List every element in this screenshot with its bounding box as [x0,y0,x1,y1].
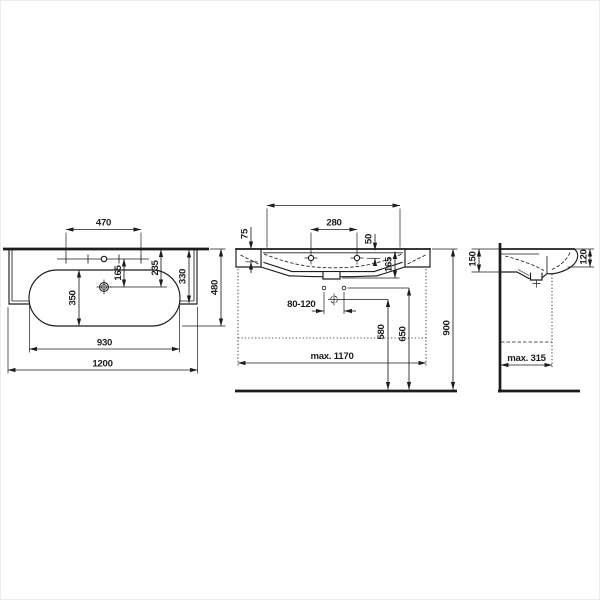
left-wing [236,249,261,267]
ext-lines [66,233,141,255]
profile-underside-inner [518,270,529,276]
right-wing [405,249,430,267]
supply-connection-hole [322,286,326,290]
waste-trap-cross [533,280,541,288]
dim-rim-to-outlet: 165 [384,256,395,272]
dim-overall-width: 1200 [92,359,112,370]
dim-rim-thickness: 75 [240,228,251,239]
dim-supply-spacing: 80-120 [287,299,315,310]
dim-tap-holes-spread: 280 [326,218,341,229]
faucet-hole-marker [354,255,359,260]
dim-tap-to-drain: 165 [113,264,124,280]
faucet-hole-center [101,256,106,261]
dim-tap-spread: 470 [96,218,111,229]
waste-trap-cross [328,294,340,306]
dim-body-depth: 330 [178,269,189,284]
dashed-hidden-line [264,254,402,268]
top-view: 470 165 235 330 480 350 930 1200 [3,218,226,374]
dim-max-width: max. 1170 [310,351,353,362]
supply-connection-hole [342,286,346,290]
dim-rim-to-tap: 50 [364,234,375,244]
dim-total-depth: 480 [210,280,221,295]
dim-floor-to-rim: 900 [442,320,453,335]
profile-front-bullnose [547,249,578,274]
dim-floor-to-supply: 650 [398,326,409,341]
side-view: 150 120 max. 315 [468,243,595,393]
bowl-outline [29,270,180,326]
washbasin-dimension-drawing: 470 165 235 330 480 350 930 1200 [0,0,600,600]
dim-back-height: 150 [468,251,479,266]
dim-bowl-width: 930 [97,338,112,349]
dim-floor-to-waste: 580 [376,324,387,339]
dashed-hidden-line [505,256,544,271]
dim-front-height: 120 [579,249,590,264]
waste-stub [531,273,543,280]
dim-bowl-depth: 350 [68,290,79,305]
drawing-svg: 470 165 235 330 480 350 930 1200 [1,1,599,599]
faucet-hole-marker [308,255,313,260]
dim-back-to-drain: 235 [150,259,161,275]
dashed-hidden-line [551,253,570,270]
dim-max-depth: max. 315 [507,353,546,364]
waste-stub [323,272,340,279]
front-view: 280 75 50 165 80-120 580 650 900 [235,206,458,392]
